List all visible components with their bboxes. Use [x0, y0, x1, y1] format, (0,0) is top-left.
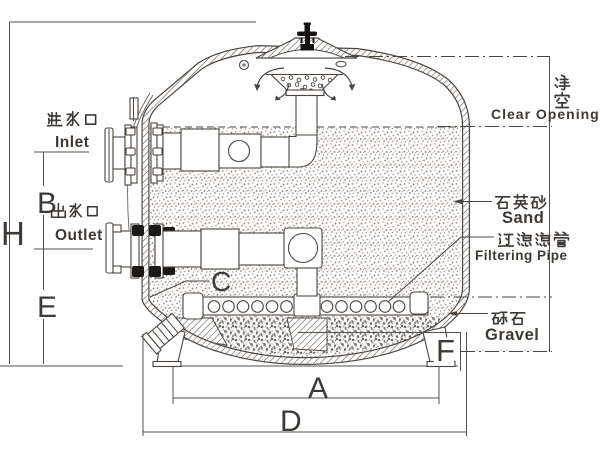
svg-text:C: C — [211, 266, 231, 297]
svg-text:B: B — [37, 187, 57, 220]
svg-text:Filtering Pipe: Filtering Pipe — [475, 248, 568, 263]
svg-text:D: D — [280, 405, 302, 438]
svg-text:H: H — [1, 215, 25, 252]
svg-text:Clear Opening: Clear Opening — [491, 106, 600, 122]
svg-text:Outlet: Outlet — [55, 227, 103, 244]
svg-text:F: F — [436, 333, 455, 368]
svg-text:Inlet: Inlet — [55, 134, 89, 151]
svg-text:Gravel: Gravel — [485, 326, 539, 344]
svg-text:A: A — [308, 372, 328, 405]
svg-text:Sand: Sand — [502, 209, 544, 227]
svg-text:E: E — [37, 291, 57, 324]
